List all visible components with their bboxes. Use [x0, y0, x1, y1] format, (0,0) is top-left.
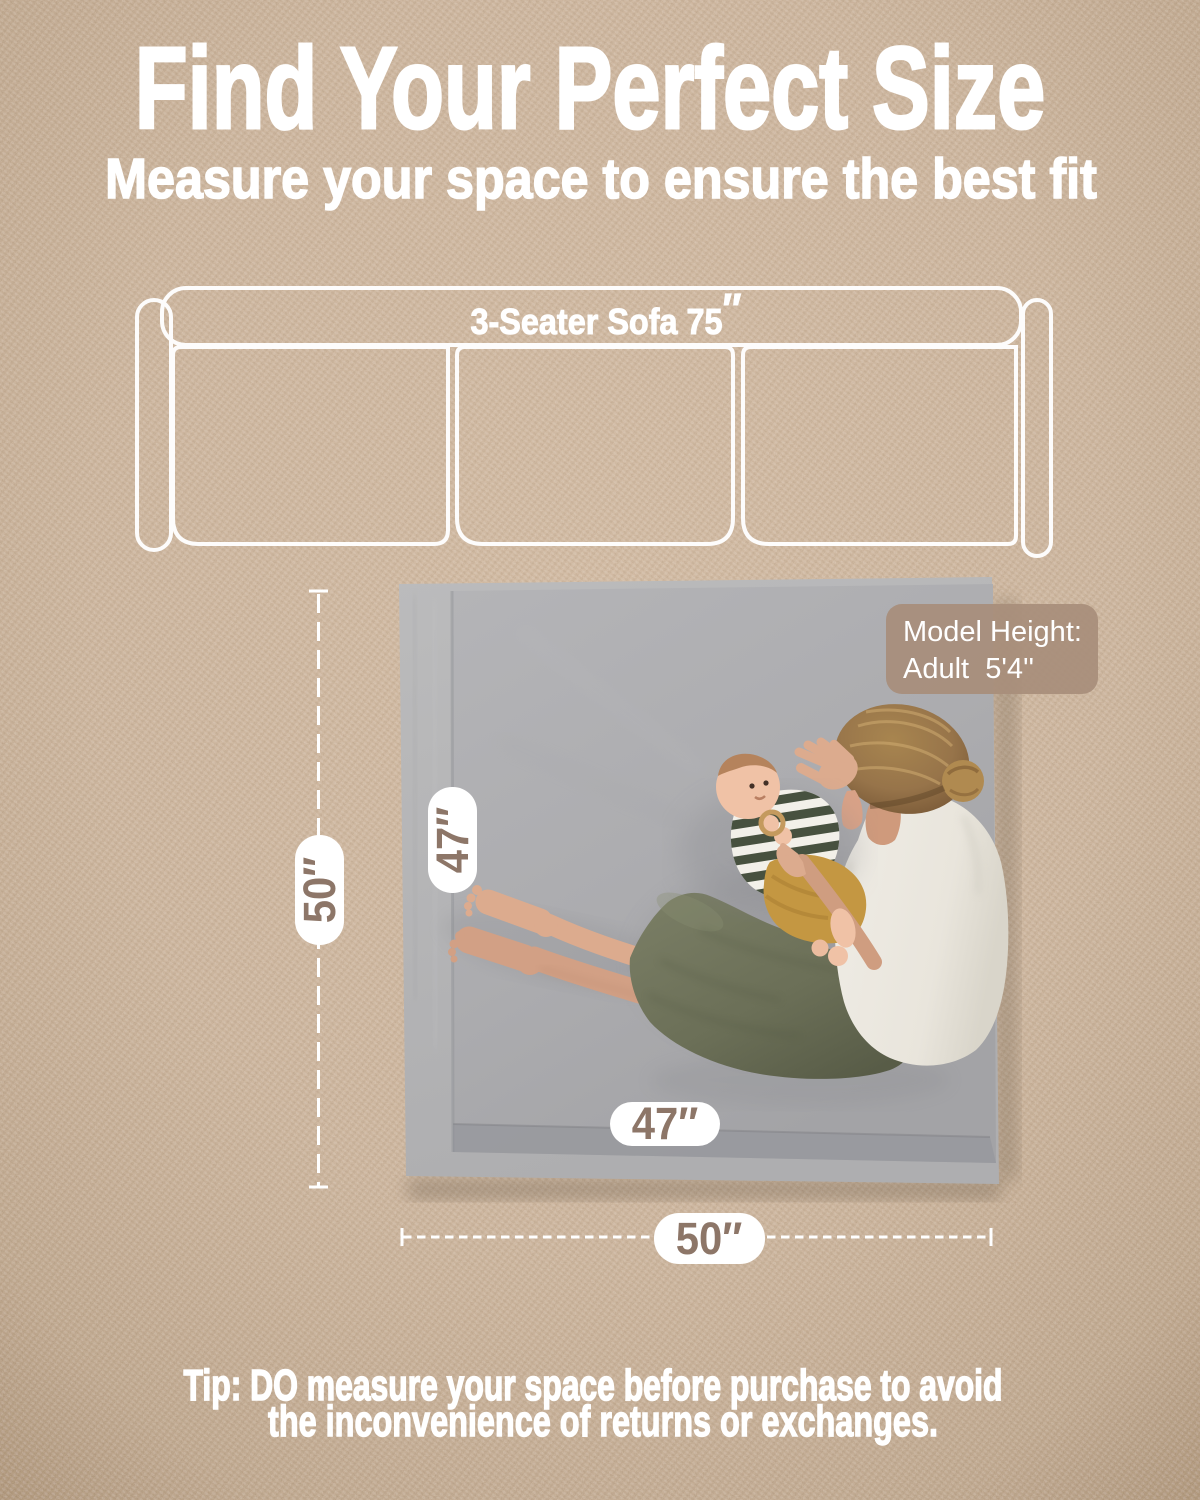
svg-text:the inconvenience of returns o: the inconvenience of returns or exchange… — [268, 1397, 938, 1446]
svg-text:Measure your space to ensure t: Measure your space to ensure the best fi… — [105, 147, 1097, 211]
svg-text:Find Your Perfect Size: Find Your Perfect Size — [135, 23, 1045, 153]
svg-text:47″: 47″ — [429, 807, 479, 874]
svg-text:47″: 47″ — [632, 1100, 699, 1150]
svg-text:Model Height:: Model Height: — [903, 616, 1082, 648]
svg-text:50″: 50″ — [676, 1215, 743, 1265]
svg-text:50″: 50″ — [296, 857, 346, 924]
svg-text:Adult 5'4'': Adult 5'4'' — [903, 653, 1034, 685]
